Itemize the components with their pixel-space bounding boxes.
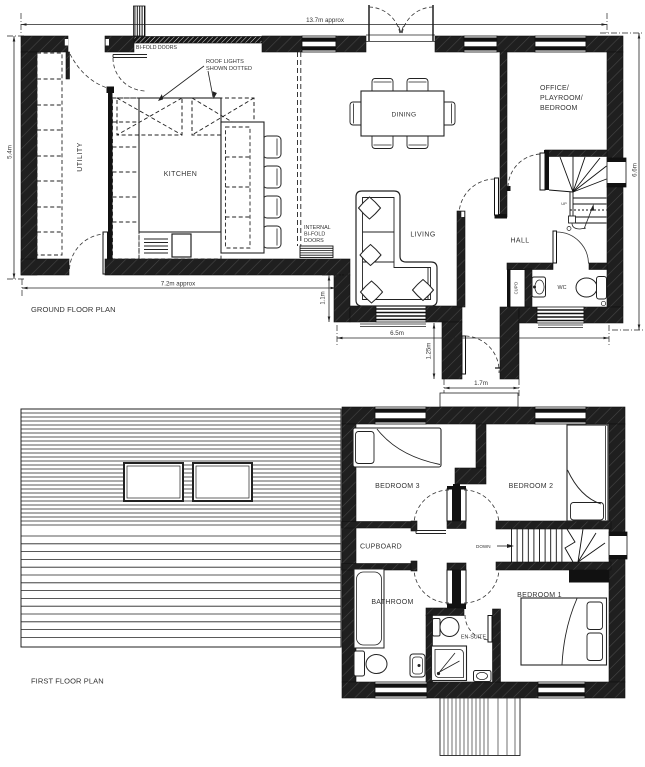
svg-text:6.6m: 6.6m (632, 163, 639, 177)
svg-text:PLAYROOM/: PLAYROOM/ (540, 95, 583, 102)
svg-text:KITCHEN: KITCHEN (164, 171, 198, 178)
svg-text:UP: UP (561, 201, 567, 206)
svg-text:1.25m: 1.25m (427, 343, 433, 360)
svg-text:CUP'D: CUP'D (514, 282, 519, 295)
svg-text:CUPBOARD: CUPBOARD (360, 544, 402, 551)
svg-text:BI-FOLD: BI-FOLD (304, 232, 325, 238)
svg-text:HALL: HALL (510, 238, 529, 245)
svg-text:LIVING: LIVING (410, 232, 435, 239)
svg-text:SHOWN DOTTED: SHOWN DOTTED (206, 66, 252, 72)
svg-text:FIRST FLOOR PLAN: FIRST FLOOR PLAN (31, 677, 104, 686)
svg-text:BEDROOM: BEDROOM (540, 105, 578, 112)
svg-text:BI-FOLD DOORS: BI-FOLD DOORS (136, 45, 177, 51)
svg-text:ROOF LIGHTS: ROOF LIGHTS (206, 59, 244, 65)
svg-text:5.4m: 5.4m (7, 145, 14, 159)
svg-text:1.7m: 1.7m (474, 380, 488, 387)
svg-text:DOWN: DOWN (476, 544, 491, 549)
svg-text:EN-SUITE: EN-SUITE (461, 635, 487, 641)
svg-text:OFFICE/: OFFICE/ (540, 85, 569, 92)
svg-text:UTILITY: UTILITY (77, 142, 84, 172)
svg-text:DOORS: DOORS (304, 238, 324, 244)
svg-text:13.7m approx: 13.7m approx (306, 17, 345, 24)
svg-text:7.2m approx: 7.2m approx (161, 281, 196, 288)
svg-text:WC: WC (558, 285, 567, 291)
svg-text:INTERNAL: INTERNAL (304, 225, 331, 231)
svg-text:GROUND FLOOR PLAN: GROUND FLOOR PLAN (31, 305, 116, 314)
svg-text:6.5m: 6.5m (390, 330, 404, 337)
svg-text:DINING: DINING (392, 112, 417, 119)
svg-text:BATHROOM: BATHROOM (371, 599, 413, 606)
svg-text:1.1m: 1.1m (321, 291, 327, 304)
svg-text:BEDROOM 3: BEDROOM 3 (375, 483, 420, 490)
svg-text:BEDROOM 2: BEDROOM 2 (509, 483, 554, 490)
